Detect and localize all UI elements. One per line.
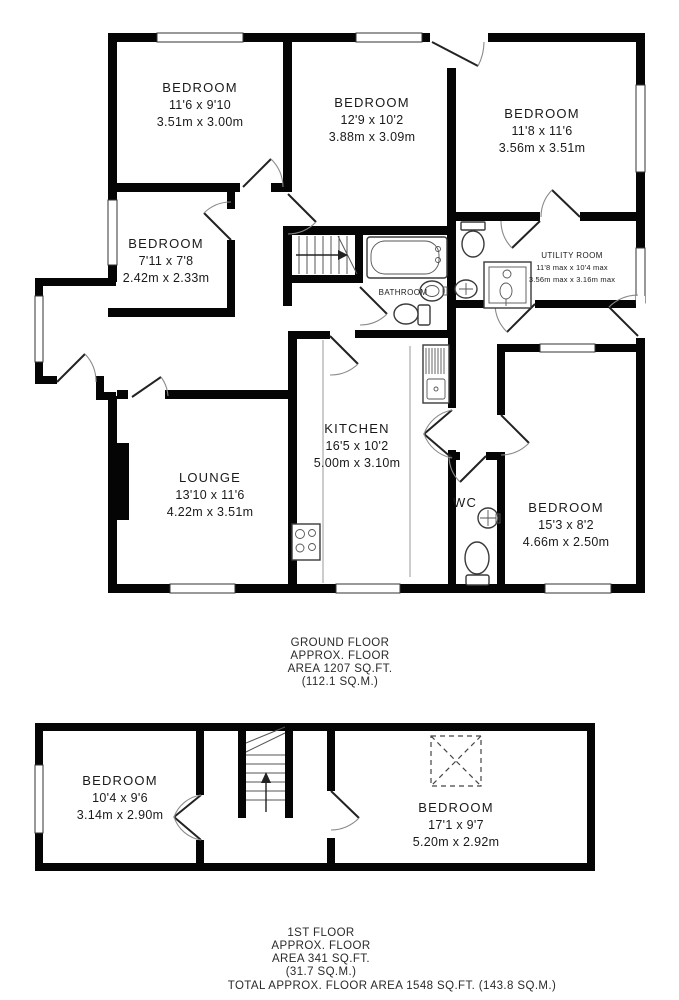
svg-text:BEDROOM: BEDROOM — [334, 95, 410, 110]
chimney-breast — [117, 443, 129, 520]
svg-text:BEDROOM: BEDROOM — [82, 773, 158, 788]
svg-text:17'1 x 9'7: 17'1 x 9'7 — [428, 818, 484, 832]
svg-text:4.66m x 2.50m: 4.66m x 2.50m — [523, 535, 610, 549]
svg-text:BEDROOM: BEDROOM — [162, 80, 238, 95]
svg-text:5.00m x 3.10m: 5.00m x 3.10m — [314, 456, 401, 470]
window-icon — [170, 584, 235, 593]
wc-fixtures — [465, 508, 500, 585]
window-icon — [356, 33, 422, 42]
svg-text:11'8 max x 10'4 max: 11'8 max x 10'4 max — [536, 263, 608, 272]
room-label-wc: WC — [453, 495, 477, 510]
svg-text:11'8 x 11'6: 11'8 x 11'6 — [511, 124, 572, 138]
room-label-utility: UTILITY ROOM 11'8 max x 10'4 max 3.56m m… — [529, 251, 615, 284]
svg-text:13'10 x 11'6: 13'10 x 11'6 — [175, 488, 244, 502]
first-floor-windows — [35, 765, 43, 833]
loft-restricted-height-icon — [431, 736, 481, 786]
svg-text:AREA 341 SQ.FT.: AREA 341 SQ.FT. — [272, 953, 370, 965]
room-label-bedroom-1: BEDROOM 11'6 x 9'10 3.51m x 3.00m — [157, 80, 244, 129]
room-label-bedroom-2: BEDROOM 12'9 x 10'2 3.88m x 3.09m — [329, 95, 416, 144]
first-floor-plan: BEDROOM 10'4 x 9'6 3.14m x 2.90m BEDROOM… — [35, 723, 595, 978]
svg-text:2.42m x 2.33m: 2.42m x 2.33m — [123, 271, 210, 285]
sink-icon — [478, 508, 500, 528]
svg-text:10'4 x 9'6: 10'4 x 9'6 — [92, 791, 148, 805]
floorplan-svg: BEDROOM 11'6 x 9'10 3.51m x 3.00m BEDROO… — [0, 0, 679, 1000]
svg-text:(31.7 SQ.M.): (31.7 SQ.M.) — [286, 966, 357, 978]
stairs-icon — [246, 727, 285, 812]
floorplan-page: BEDROOM 11'6 x 9'10 3.51m x 3.00m BEDROO… — [0, 0, 679, 1000]
svg-text:16'5 x 10'2: 16'5 x 10'2 — [326, 439, 389, 453]
window-icon — [35, 765, 43, 833]
svg-text:12'9 x 10'2: 12'9 x 10'2 — [341, 113, 404, 127]
svg-text:BEDROOM: BEDROOM — [528, 500, 604, 515]
bathtub-icon — [367, 237, 447, 278]
svg-text:UTILITY ROOM: UTILITY ROOM — [541, 251, 603, 260]
svg-text:3.14m x 2.90m: 3.14m x 2.90m — [77, 808, 164, 822]
svg-text:WC: WC — [453, 495, 477, 510]
window-icon — [636, 85, 645, 172]
stove-icon — [292, 524, 320, 560]
svg-text:7'11 x 7'8: 7'11 x 7'8 — [139, 254, 194, 268]
window-icon — [108, 200, 117, 265]
toilet-icon — [394, 304, 430, 325]
svg-text:BEDROOM: BEDROOM — [128, 236, 204, 251]
shower-tray-icon — [484, 262, 531, 308]
svg-text:3.56m max x 3.16m max: 3.56m max x 3.16m max — [529, 275, 615, 284]
svg-text:4.22m x 3.51m: 4.22m x 3.51m — [167, 505, 254, 519]
toilet-icon — [461, 222, 485, 257]
svg-text:TOTAL APPROX. FLOOR AREA 1548: TOTAL APPROX. FLOOR AREA 1548 SQ.FT. (14… — [228, 980, 556, 992]
svg-text:11'6 x 9'10: 11'6 x 9'10 — [169, 98, 231, 112]
svg-text:5.20m x 2.92m: 5.20m x 2.92m — [413, 835, 500, 849]
svg-text:APPROX. FLOOR: APPROX. FLOOR — [271, 940, 370, 952]
svg-text:BEDROOM: BEDROOM — [504, 106, 580, 121]
room-label-bedroom-4: BEDROOM 7'11 x 7'8 2.42m x 2.33m — [123, 236, 210, 285]
room-label-bedroom-6: BEDROOM 10'4 x 9'6 3.14m x 2.90m — [77, 773, 164, 822]
room-label-bedroom-7: BEDROOM 17'1 x 9'7 5.20m x 2.92m — [413, 800, 500, 849]
svg-text:(112.1 SQ.M.): (112.1 SQ.M.) — [302, 676, 379, 688]
stairs-icon — [296, 236, 357, 274]
svg-text:BATHROOM: BATHROOM — [379, 288, 428, 297]
svg-text:1ST FLOOR: 1ST FLOOR — [287, 927, 354, 939]
svg-text:KITCHEN: KITCHEN — [324, 421, 389, 436]
svg-text:3.51m x 3.00m: 3.51m x 3.00m — [157, 115, 244, 129]
sink-icon — [455, 280, 477, 298]
svg-text:BEDROOM: BEDROOM — [418, 800, 494, 815]
svg-text:3.88m x 3.09m: 3.88m x 3.09m — [329, 130, 416, 144]
bathroom-fixtures — [367, 237, 447, 325]
room-label-kitchen: KITCHEN 16'5 x 10'2 5.00m x 3.10m — [314, 421, 401, 470]
ground-floor-plan: BEDROOM 11'6 x 9'10 3.51m x 3.00m BEDROO… — [35, 33, 645, 688]
window-icon — [35, 296, 43, 362]
svg-text:APPROX. FLOOR: APPROX. FLOOR — [290, 650, 389, 662]
svg-text:GROUND FLOOR: GROUND FLOOR — [291, 637, 390, 649]
ground-floor-caption: GROUND FLOOR APPROX. FLOOR AREA 1207 SQ.… — [288, 637, 393, 688]
window-icon — [336, 584, 400, 593]
svg-text:3.56m x 3.51m: 3.56m x 3.51m — [499, 141, 586, 155]
window-icon — [545, 584, 611, 593]
svg-text:AREA 1207 SQ.FT.: AREA 1207 SQ.FT. — [288, 663, 393, 675]
room-label-bathroom: BATHROOM — [379, 288, 428, 297]
window-icon — [540, 344, 595, 352]
svg-text:15'3 x 8'2: 15'3 x 8'2 — [538, 518, 594, 532]
room-label-bedroom-5: BEDROOM 15'3 x 8'2 4.66m x 2.50m — [523, 500, 610, 549]
utility-fixtures — [455, 222, 531, 308]
svg-text:LOUNGE: LOUNGE — [179, 470, 241, 485]
kitchen-sink-icon — [423, 345, 449, 403]
toilet-icon — [465, 542, 489, 585]
room-label-lounge: LOUNGE 13'10 x 11'6 4.22m x 3.51m — [167, 470, 254, 519]
first-floor-caption: 1ST FLOOR APPROX. FLOOR AREA 341 SQ.FT. … — [271, 927, 370, 978]
total-area-caption: TOTAL APPROX. FLOOR AREA 1548 SQ.FT. (14… — [228, 980, 556, 992]
room-label-bedroom-3: BEDROOM 11'8 x 11'6 3.56m x 3.51m — [499, 106, 586, 155]
window-icon — [157, 33, 243, 42]
